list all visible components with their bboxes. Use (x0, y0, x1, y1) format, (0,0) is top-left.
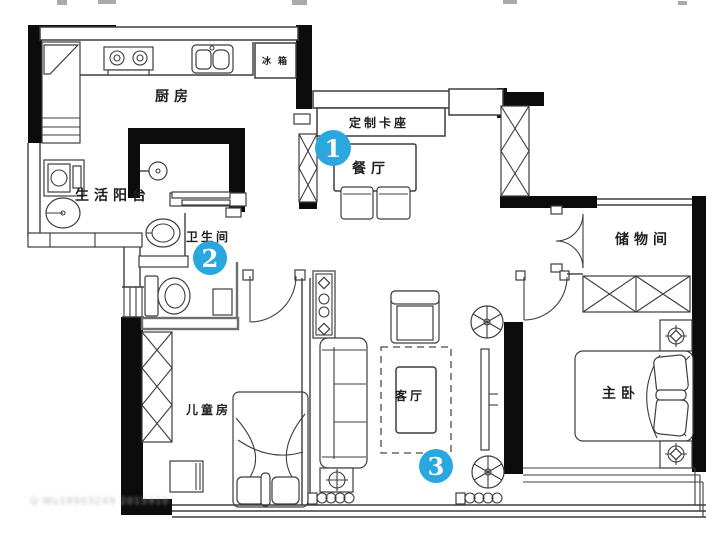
marker-3: 3 (419, 449, 453, 483)
ruler-ticks (57, 0, 687, 5)
marker-1: 1 (315, 130, 351, 166)
nightstand (660, 320, 692, 351)
kitchen-label: 厨房 (155, 88, 193, 105)
curtain-icon (308, 493, 354, 504)
master-bed: 主卧 (575, 351, 693, 441)
nightstand (660, 441, 692, 468)
balcony-label: 生活阳台 (75, 187, 151, 204)
bath-shelf (172, 192, 230, 198)
watermark: Q·Wu18903249 2015910 (30, 496, 169, 507)
bathroom-sink-icon (139, 213, 188, 267)
marker-2: 2 (193, 241, 227, 275)
balcony-sill (28, 233, 142, 247)
marker-number: 1 (325, 134, 342, 163)
bay-window (523, 468, 703, 517)
floorplan-canvas: 冰箱 厨房 生活阳台 (0, 0, 726, 534)
stove-icon (104, 47, 153, 75)
kids-nightstand (170, 461, 203, 492)
master-label: 主卧 (602, 385, 640, 402)
entry-porch (449, 89, 503, 115)
marker-number: 3 (428, 452, 445, 481)
shower-icon (140, 162, 167, 180)
kitchen-sink-icon (192, 45, 233, 73)
side-table (320, 468, 353, 492)
dining-chair (377, 187, 410, 219)
dining-chair (341, 187, 373, 219)
storage-double-door-swing (551, 206, 583, 272)
curtain-icon (456, 493, 502, 504)
wardrobe (583, 276, 690, 312)
fridge-label: 冰箱 (262, 55, 294, 67)
fridge: 冰箱 (255, 43, 296, 78)
toilet-icon (145, 276, 190, 316)
kids-wardrobe (142, 332, 172, 442)
entry-cabinet (313, 271, 335, 338)
hatched-column (299, 134, 317, 202)
custom-booth-label: 定制卡座 (349, 115, 409, 130)
sofa (320, 338, 367, 468)
toilet-room-wall (142, 318, 238, 329)
coffee-table: 客厅 (394, 367, 436, 433)
living-room: 客厅 (308, 271, 504, 504)
bathroom-door-swing (243, 270, 305, 322)
armchair (391, 291, 439, 343)
floorplan-drawing: 冰箱 厨房 生活阳台 (0, 0, 726, 534)
marker-number: 2 (202, 244, 219, 273)
tv (481, 349, 498, 450)
bath-cabinet (213, 289, 232, 315)
kitchen-window (40, 27, 298, 40)
storage-room: 储物间 (501, 106, 692, 312)
storage-label: 储物间 (614, 231, 672, 248)
kids-bed (233, 392, 308, 507)
kids-room-label: 儿童房 (185, 402, 231, 417)
plant-icon (472, 456, 504, 488)
dining-top-wall (313, 91, 452, 108)
dining-label: 餐厅 (351, 160, 390, 177)
living-label: 客厅 (394, 388, 425, 403)
master-door-swing (516, 271, 583, 320)
hatched-column-right (501, 106, 529, 196)
plant-icon (471, 306, 503, 338)
left-window (122, 287, 144, 317)
bathroom: 卫生间 (139, 162, 305, 329)
